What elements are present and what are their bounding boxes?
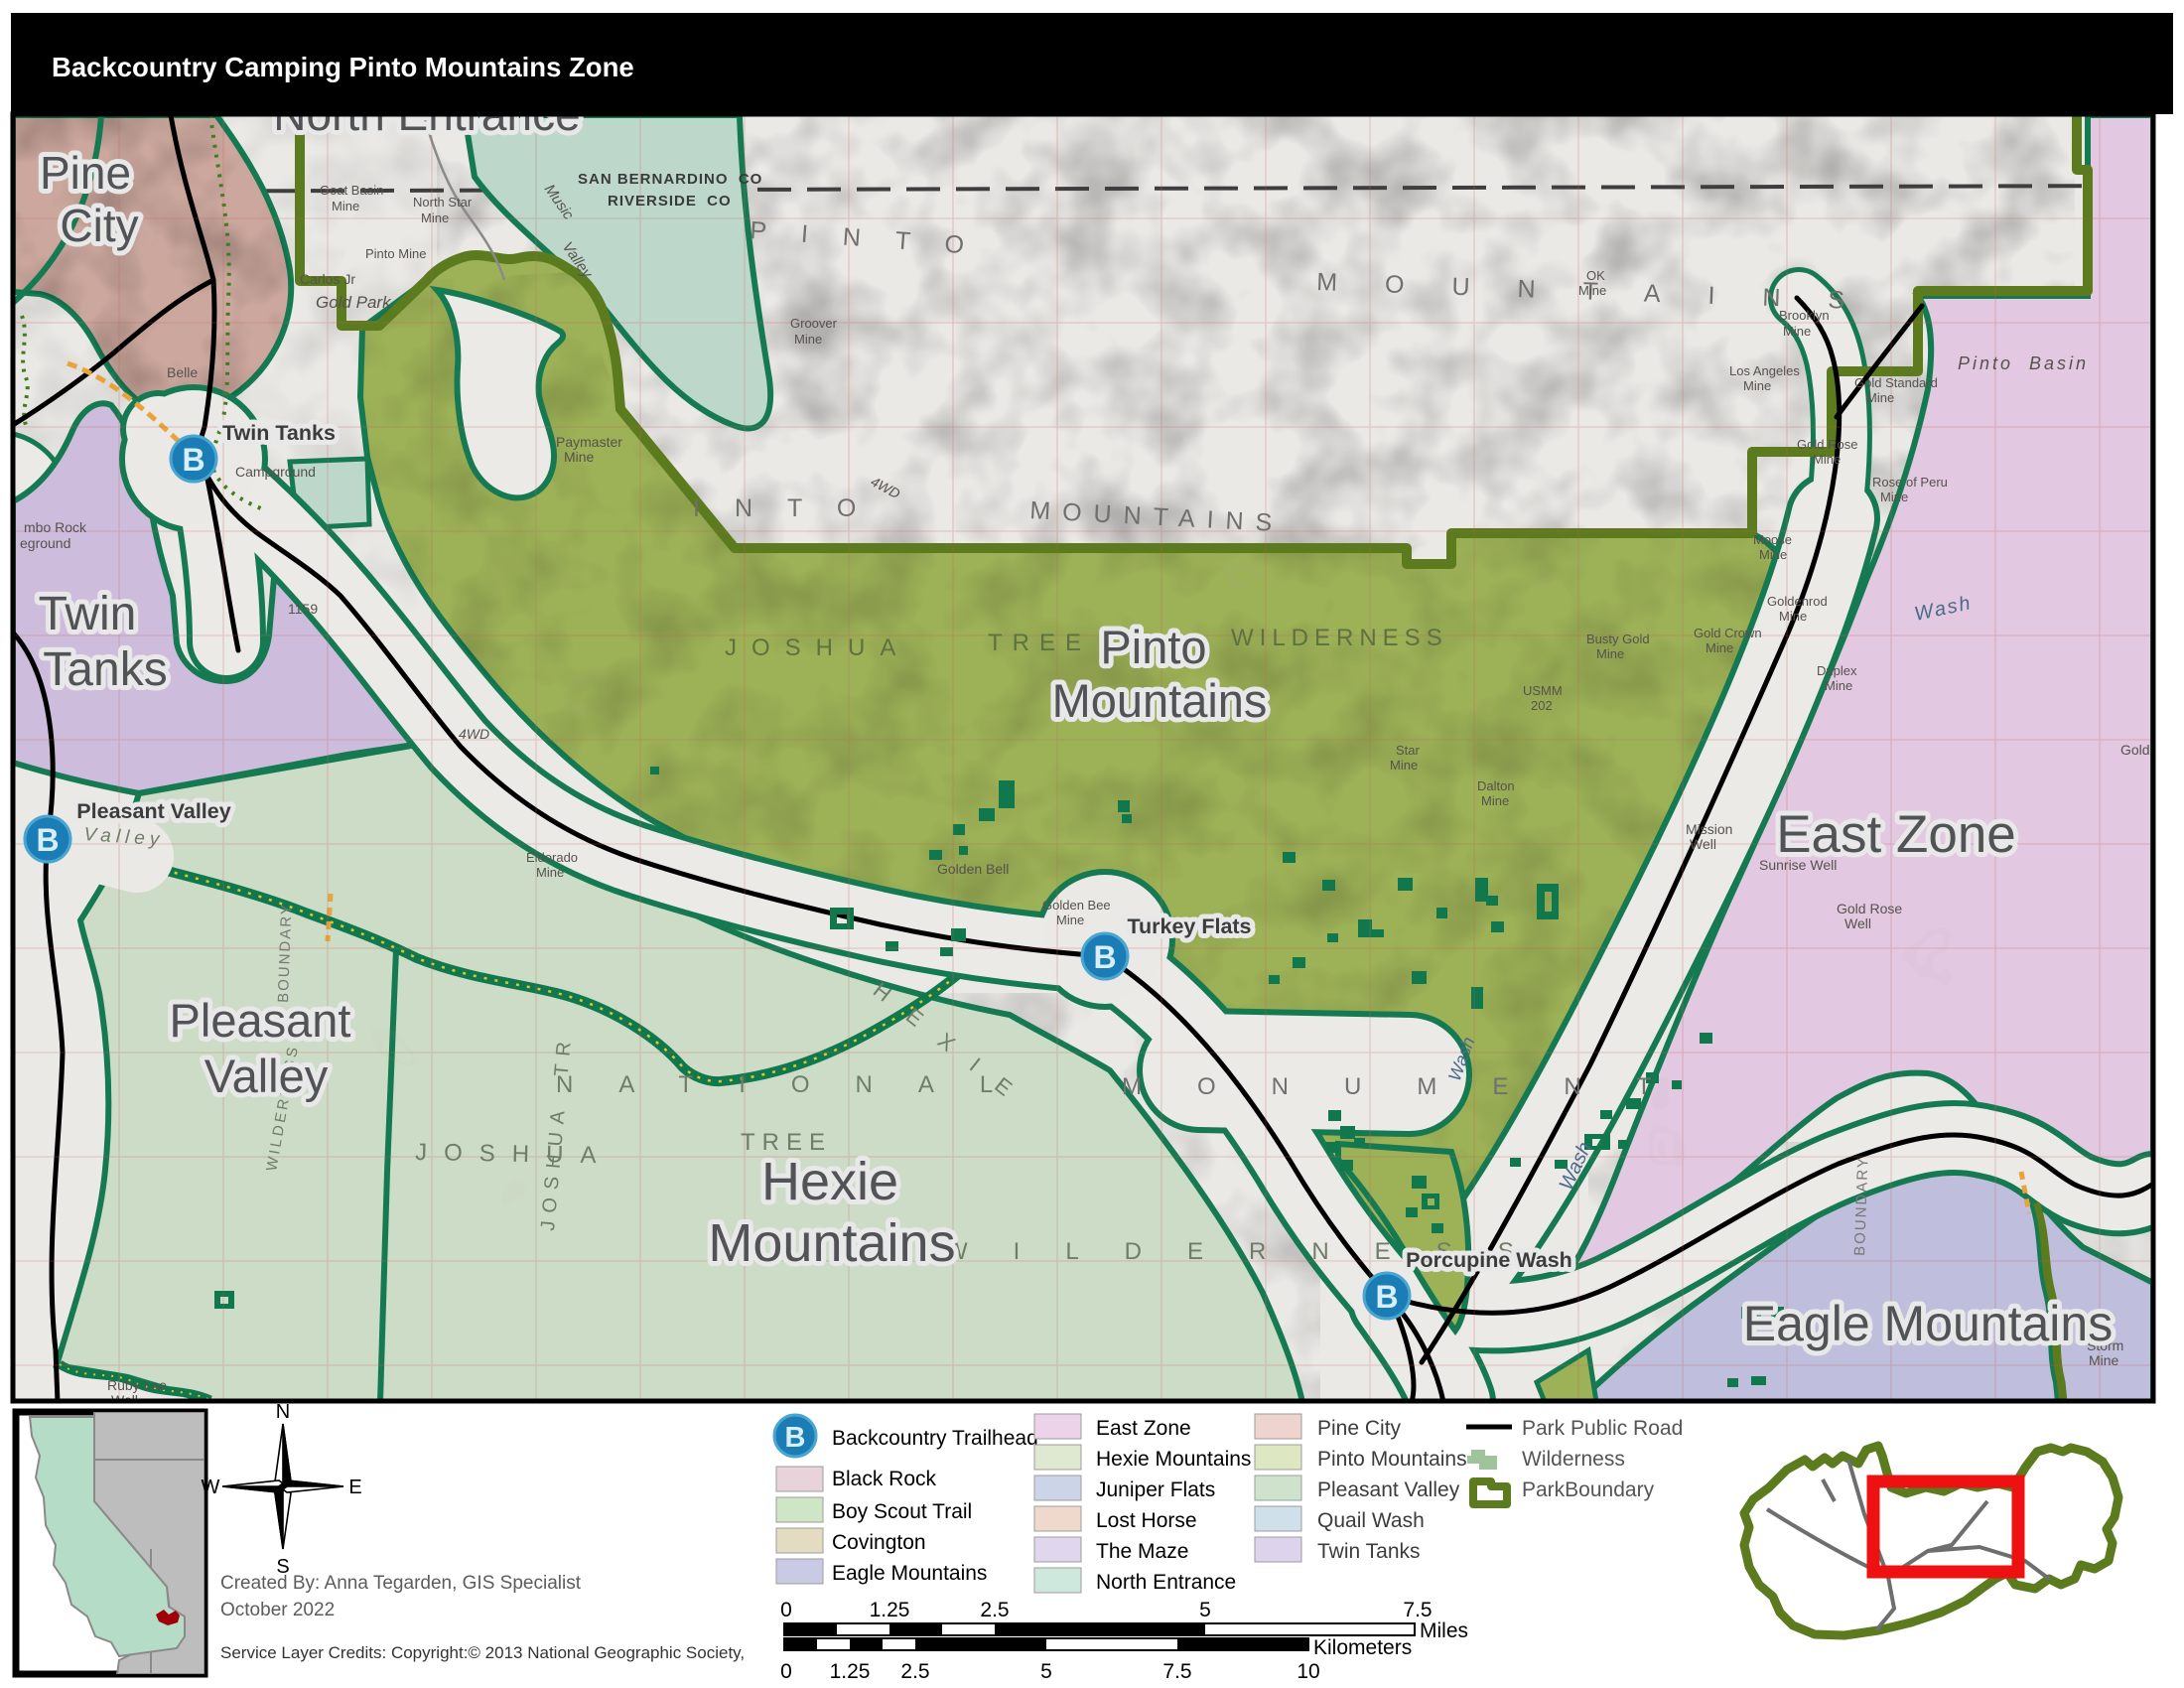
svg-text:Mine: Mine [1743,378,1771,393]
svg-text:B: B [1375,1279,1398,1315]
svg-text:Mine: Mine [1825,678,1852,693]
svg-text:Dalton: Dalton [1477,778,1515,793]
svg-text:1.25: 1.25 [870,1599,910,1621]
svg-text:Backcountry Trailhead: Backcountry Trailhead [832,1427,1038,1450]
svg-text:Belle: Belle [167,364,198,380]
svg-text:Pine City: Pine City [1317,1417,1402,1440]
svg-text:4WD: 4WD [459,726,489,742]
svg-text:2.5: 2.5 [900,1660,929,1683]
svg-text:USMM: USMM [1523,683,1563,698]
svg-text:Mine: Mine [1783,324,1811,339]
svg-text:Star: Star [1396,743,1421,758]
svg-text:0: 0 [780,1599,792,1621]
svg-text:Mine: Mine [1596,646,1624,661]
svg-text:E: E [348,1477,361,1498]
svg-text:Mine: Mine [421,211,449,225]
svg-text:Pine: Pine [40,147,131,199]
svg-text:10: 10 [1297,1660,1319,1683]
svg-text:Goldenrod: Goldenrod [1767,594,1828,609]
svg-text:Mine: Mine [1481,793,1509,808]
svg-text:eground: eground [20,535,70,551]
svg-text:B: B [1093,939,1116,975]
svg-text:Quail Wash: Quail Wash [1317,1509,1425,1532]
svg-text:Golden Bell: Golden Bell [937,861,1009,877]
svg-text:Created By: Anna Tegarden, GIS: Created By: Anna Tegarden, GIS Specialis… [220,1573,582,1594]
svg-text:Paymaster: Paymaster [556,434,622,450]
svg-text:B: B [182,442,205,478]
svg-text:2.5: 2.5 [980,1599,1009,1621]
svg-text:1.25: 1.25 [830,1660,871,1683]
svg-text:Pinto: Pinto [1100,621,1206,673]
svg-text:East Zone: East Zone [1096,1417,1191,1440]
svg-text:Kilometers: Kilometers [1313,1636,1412,1659]
svg-text:Juniper Flats: Juniper Flats [1096,1478,1215,1501]
svg-text:BOUNDARY: BOUNDARY [1851,1156,1872,1256]
svg-text:Campground: Campground [235,464,316,480]
svg-text:W: W [202,1477,220,1498]
svg-text:Hexie: Hexie [761,1152,898,1211]
svg-text:N: N [276,1401,290,1423]
svg-text:Porcupine Wash: Porcupine Wash [1406,1248,1572,1272]
svg-text:Mine: Mine [1866,390,1894,405]
svg-text:The Maze: The Maze [1096,1540,1188,1563]
svg-text:Moose: Moose [1753,532,1792,547]
svg-text:B: B [785,1422,806,1454]
svg-text:Gold Park: Gold Park [316,293,392,312]
svg-text:Gold Rose: Gold Rose [1797,437,1857,452]
svg-text:Busty Gold: Busty Gold [1586,632,1650,646]
svg-text:ParkBoundary: ParkBoundary [1522,1478,1655,1501]
svg-text:Mine: Mine [794,332,822,347]
svg-text:Eagle Mountains: Eagle Mountains [1743,1296,2113,1351]
svg-text:Twin: Twin [39,588,137,640]
svg-text:OK: OK [1586,268,1605,283]
svg-text:Lost Horse: Lost Horse [1096,1509,1197,1532]
svg-text:Mountains: Mountains [1052,674,1268,727]
svg-text:Mine: Mine [536,865,564,880]
svg-text:BOUNDARY: BOUNDARY [275,903,296,1003]
svg-text:October 2022: October 2022 [220,1600,335,1620]
svg-text:Mission: Mission [1686,821,1732,837]
svg-text:Black Rock: Black Rock [832,1468,937,1490]
svg-text:Ruby Lee: Ruby Lee [107,1377,167,1393]
svg-text:Duplex: Duplex [1817,663,1857,678]
svg-text:Twin Tanks: Twin Tanks [222,421,336,445]
svg-text:JOSHUA: JOSHUA [725,634,910,661]
svg-text:Mine: Mine [1390,758,1418,773]
svg-text:Mine: Mine [1578,283,1606,298]
svg-text:Golden Bee: Golden Bee [1042,898,1111,913]
svg-text:7.5: 7.5 [1403,1599,1432,1621]
svg-text:WILDERNESS: WILDERNESS [1231,625,1448,651]
svg-text:5: 5 [1199,1599,1211,1621]
svg-text:Gold Standard: Gold Standard [1854,375,1938,390]
svg-text:0: 0 [780,1660,792,1683]
svg-text:Mine: Mine [1706,640,1733,655]
svg-text:Gold Rose: Gold Rose [1837,901,1902,916]
svg-text:Rose of Peru: Rose of Peru [1872,475,1948,490]
svg-text:202: 202 [1531,698,1553,713]
svg-text:Service Layer Credits: Copyrig: Service Layer Credits: Copyright:© 2013 … [220,1643,745,1662]
svg-text:Mountains: Mountains [708,1213,955,1273]
svg-text:INTO: INTO [693,494,890,522]
svg-text:Pinto Basin: Pinto Basin [1958,353,2089,373]
svg-text:mbo Rock: mbo Rock [24,519,87,535]
svg-text:MONUMENT: MONUMENT [1122,1073,1706,1100]
svg-text:Mine: Mine [1759,547,1787,562]
svg-text:Pleasant: Pleasant [170,994,351,1047]
svg-text:Mine: Mine [564,449,595,465]
svg-text:Miles: Miles [1420,1619,1468,1642]
svg-text:Valley: Valley [205,1050,329,1102]
svg-text:Groover: Groover [790,316,838,331]
svg-text:Pinto Mountains: Pinto Mountains [1317,1448,1467,1471]
svg-text:7.5: 7.5 [1162,1660,1191,1683]
svg-text:Gold Crown: Gold Crown [1694,626,1762,640]
svg-text:5: 5 [1040,1660,1052,1683]
svg-text:Turkey Flats: Turkey Flats [1127,914,1251,938]
svg-text:Pleasant Valley: Pleasant Valley [76,799,230,823]
svg-text:JOSHUA: JOSHUA [415,1139,614,1169]
svg-text:Wilderness: Wilderness [1522,1448,1625,1471]
svg-text:B: B [36,822,59,858]
svg-text:Mine: Mine [1813,452,1841,467]
svg-text:SAN BERNARDINO CO: SAN BERNARDINO CO [578,171,762,188]
svg-text:Goat Basin: Goat Basin [320,183,383,198]
svg-text:Eagle Mountains: Eagle Mountains [832,1562,987,1585]
svg-text:Los Angeles: Los Angeles [1729,363,1800,378]
svg-text:Carlos Jr: Carlos Jr [300,271,355,287]
svg-text:Brooklyn: Brooklyn [1779,308,1830,323]
svg-text:East Zone: East Zone [1776,805,2016,864]
svg-text:Mine: Mine [1779,609,1807,624]
svg-text:North Star: North Star [413,195,473,210]
svg-text:TREE: TREE [988,630,1091,656]
svg-text:1159: 1159 [288,601,318,617]
svg-text:Well: Well [1844,915,1871,931]
svg-text:NATIONAL: NATIONAL [556,1071,1038,1098]
svg-text:Mine: Mine [332,199,359,213]
svg-text:Pinto Mine: Pinto Mine [365,246,426,261]
svg-text:Mine: Mine [2089,1352,2119,1368]
svg-text:Covington: Covington [832,1531,926,1554]
svg-text:Backcountry Camping Pinto Moun: Backcountry Camping Pinto Mountains Zone [52,52,634,82]
svg-text:Eldorado: Eldorado [526,850,578,865]
svg-text:Well: Well [1690,836,1716,852]
svg-text:City: City [60,200,138,251]
svg-text:RIVERSIDE CO: RIVERSIDE CO [608,193,732,210]
svg-text:North Entrance: North Entrance [1096,1571,1236,1594]
svg-text:Twin Tanks: Twin Tanks [1317,1540,1421,1563]
svg-text:Mine: Mine [1880,490,1908,504]
svg-text:Boy Scout Trail: Boy Scout Trail [832,1500,972,1523]
svg-text:Pleasant Valley: Pleasant Valley [1317,1478,1460,1501]
svg-text:Hexie Mountains: Hexie Mountains [1096,1448,1251,1471]
svg-text:Park Public Road: Park Public Road [1522,1417,1683,1440]
svg-text:Mine: Mine [1056,913,1084,927]
svg-text:Tanks: Tanks [43,643,167,696]
